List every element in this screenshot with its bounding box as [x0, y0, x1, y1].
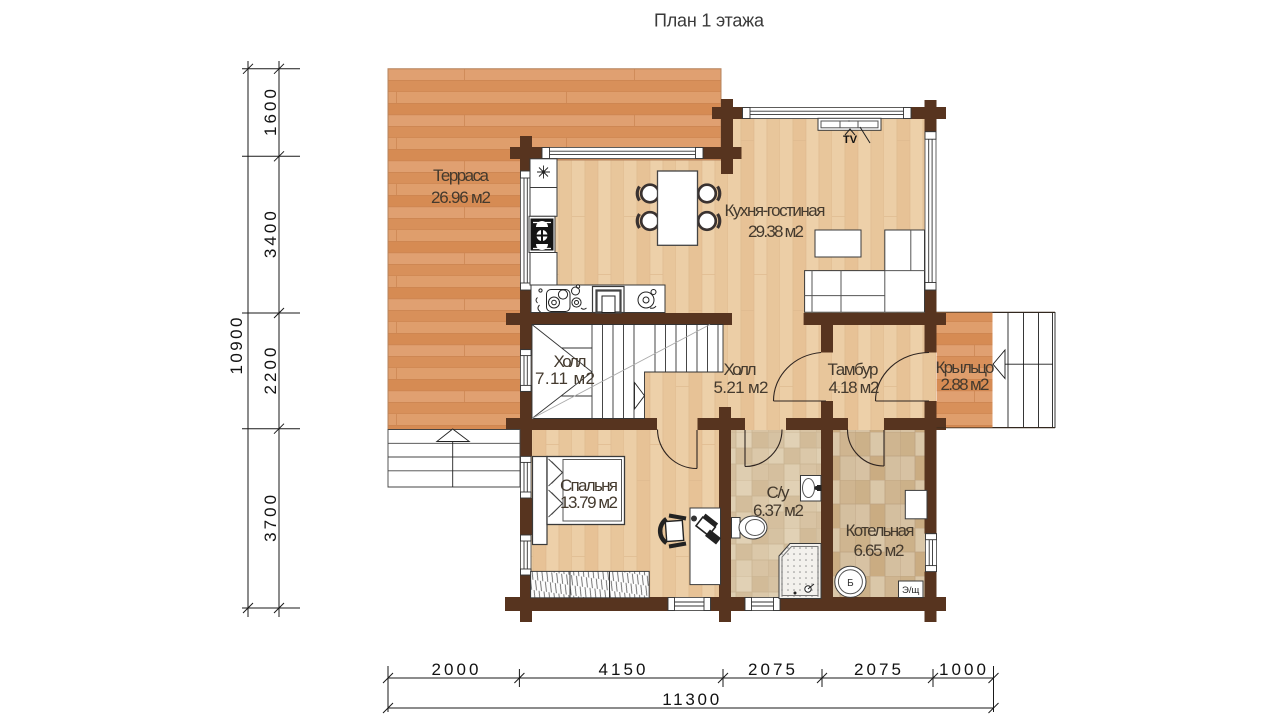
svg-text:26.96 м2: 26.96 м2 — [431, 188, 491, 207]
svg-text:4.18 м2: 4.18 м2 — [829, 378, 880, 397]
svg-text:13.79 м2: 13.79 м2 — [560, 493, 618, 512]
svg-text:Б: Б — [847, 578, 854, 589]
svg-text:Э/щ: Э/щ — [902, 585, 919, 596]
svg-text:Кухня-гостиная: Кухня-гостиная — [725, 201, 826, 220]
svg-text:5.21 м2: 5.21 м2 — [714, 378, 769, 397]
svg-text:Терраса: Терраса — [433, 166, 490, 185]
svg-text:2.88 м2: 2.88 м2 — [941, 375, 990, 394]
svg-text:7.11 м2: 7.11 м2 — [535, 369, 595, 388]
svg-text:Котельная: Котельная — [846, 521, 915, 540]
svg-text:План 1 этажа: План 1 этажа — [654, 11, 765, 31]
svg-text:6.65 м2: 6.65 м2 — [854, 541, 905, 560]
svg-text:6.37 м2: 6.37 м2 — [753, 501, 804, 520]
svg-text:10900: 10900 — [227, 318, 246, 375]
svg-text:Тамбур: Тамбур — [828, 360, 879, 379]
svg-text:29.38 м2: 29.38 м2 — [748, 222, 804, 241]
svg-text:TV: TV — [843, 134, 858, 146]
svg-text:С/у: С/у — [767, 483, 791, 502]
svg-text:Холл: Холл — [724, 360, 757, 379]
